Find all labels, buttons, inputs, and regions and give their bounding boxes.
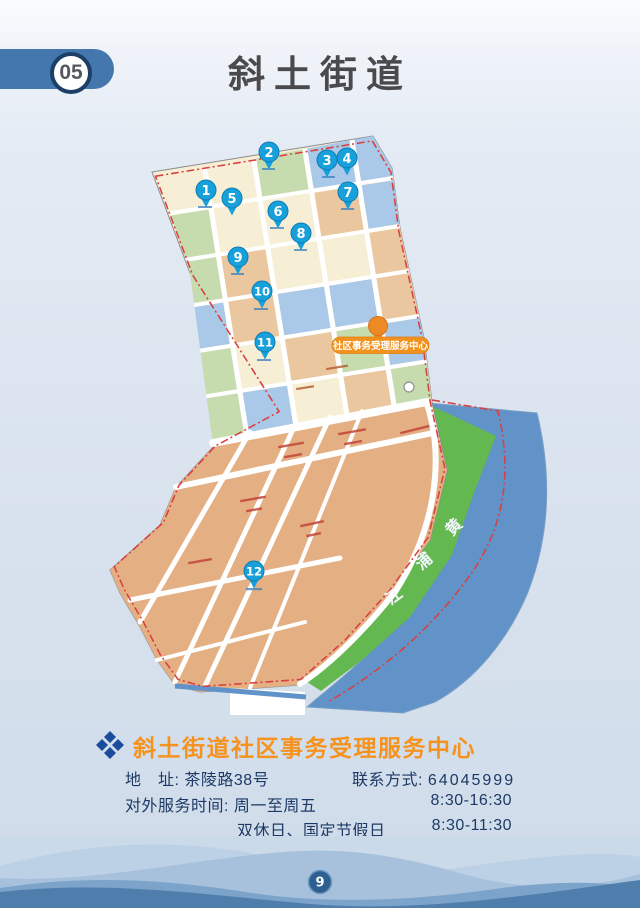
contact-label: 联系方式: <box>352 772 423 789</box>
address-label: 地 址: <box>125 772 179 789</box>
info-title: 斜土街道社区事务受理服务中心 <box>133 729 476 763</box>
district-map-svg: 黄 浦 江 1 2 3 <box>100 130 570 715</box>
svg-text:5: 5 <box>227 192 236 207</box>
weekend-time: 8:30-11:30 <box>0 817 512 835</box>
footer-waves: 9 <box>0 836 640 908</box>
svg-text:2: 2 <box>264 146 273 161</box>
svg-text:7: 7 <box>343 186 352 201</box>
service-center-label-text: 社区事务受理服务中心 <box>332 340 429 352</box>
address-row: 地 址: 茶陵路38号 联系方式: 64045999 <box>125 766 269 790</box>
page-number-badge: 9 <box>309 871 332 894</box>
metro-station-icon <box>404 382 414 392</box>
weekday-time: 8:30-16:30 <box>0 792 512 810</box>
svg-text:8: 8 <box>296 227 305 242</box>
address-value: 茶陵路38号 <box>184 772 269 789</box>
svg-text:9: 9 <box>233 251 242 266</box>
svg-text:4: 4 <box>342 152 351 167</box>
brochure-page: 05 斜土街道 <box>0 0 640 908</box>
page-number: 9 <box>315 876 324 891</box>
svg-text:11: 11 <box>257 335 273 349</box>
contact-value: 64045999 <box>428 772 515 789</box>
community-affairs-logo <box>96 731 124 759</box>
svg-text:6: 6 <box>273 205 282 220</box>
svg-text:3: 3 <box>322 154 331 169</box>
svg-text:12: 12 <box>246 564 262 578</box>
service-center-label: 社区事务受理服务中心 <box>332 337 429 354</box>
svg-text:1: 1 <box>201 184 210 199</box>
svg-text:10: 10 <box>254 284 270 298</box>
page-title: 斜土街道 <box>0 44 640 98</box>
district-map: 黄 浦 江 1 2 3 <box>100 130 570 715</box>
